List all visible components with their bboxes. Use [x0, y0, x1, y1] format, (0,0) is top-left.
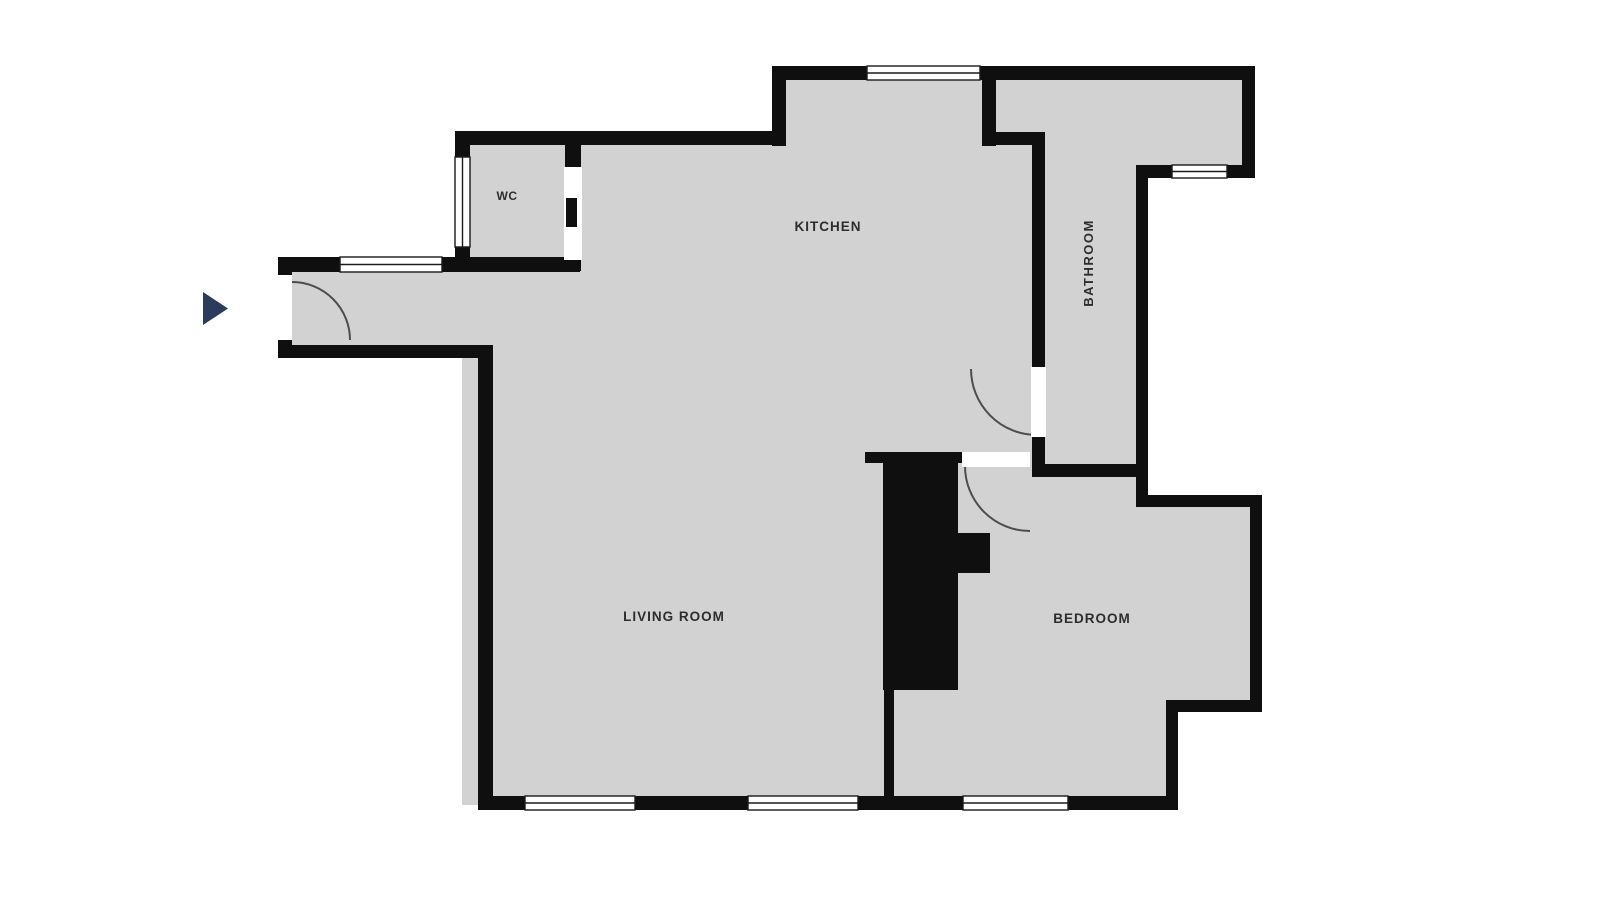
wall-hallway-bottom: [278, 345, 493, 358]
wall-living-left: [478, 345, 493, 810]
room-label-kitchen: KITCHEN: [795, 219, 862, 234]
wall-bathroom-right: [1136, 165, 1148, 507]
floor-bedroom-bottom: [888, 700, 1174, 800]
floorplan-page: WC KITCHEN BATHROOM LIVING ROOM BEDROOM: [0, 0, 1600, 900]
wall-kitchen-bath-jog: [982, 132, 1045, 145]
wc-door-leaf-group: [566, 198, 577, 227]
wall-bathroom-bottom: [1032, 464, 1148, 477]
bathroom-door-opening: [1031, 367, 1046, 437]
bedroom-door-opening: [962, 452, 1030, 467]
column-body: [883, 455, 958, 690]
column-protrusion: [958, 533, 990, 573]
wall-right-bedroom: [1250, 495, 1262, 712]
wall-living-bedroom-divider: [884, 690, 894, 810]
wall-bedroom-top-right: [1136, 495, 1262, 507]
room-label-wc: WC: [497, 189, 518, 203]
floor-bedroom-right: [1140, 500, 1254, 705]
play-triangle-icon[interactable]: [203, 292, 228, 325]
wall-top: [772, 66, 1255, 80]
entry-door-opening: [278, 275, 292, 340]
room-label-bedroom: BEDROOM: [1053, 611, 1131, 626]
floorplan-image: WC KITCHEN BATHROOM LIVING ROOM BEDROOM: [0, 0, 1600, 900]
wc-door-leaf: [566, 198, 577, 227]
floor-layer: [285, 72, 1254, 805]
room-label-living-room: LIVING ROOM: [623, 609, 725, 624]
wall-wc-kitchen-top: [455, 131, 785, 145]
wall-right-top: [1242, 66, 1255, 178]
wall-bedroom-step-v: [1166, 700, 1178, 810]
floor-kitchen-bump: [772, 72, 997, 148]
wall-bedroom-step-h: [1166, 700, 1262, 712]
room-label-bathroom: BATHROOM: [1081, 219, 1096, 307]
